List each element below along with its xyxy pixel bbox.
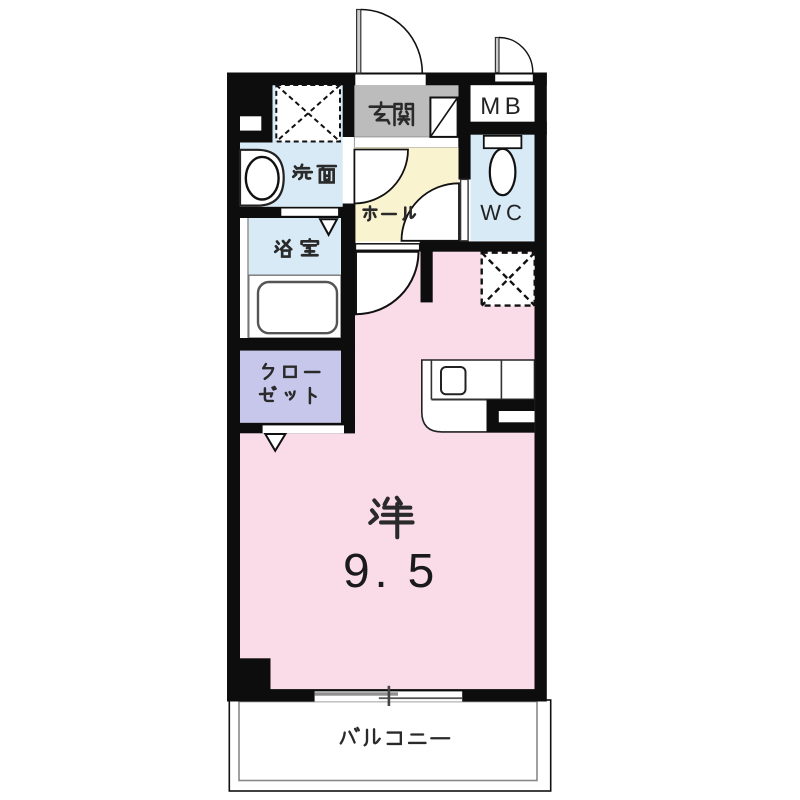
svg-text:WC: WC [480, 200, 527, 225]
svg-text:5: 5 [408, 545, 435, 598]
svg-text:.: . [374, 545, 387, 598]
svg-text:MB: MB [480, 93, 525, 120]
svg-text:9: 9 [343, 545, 370, 598]
